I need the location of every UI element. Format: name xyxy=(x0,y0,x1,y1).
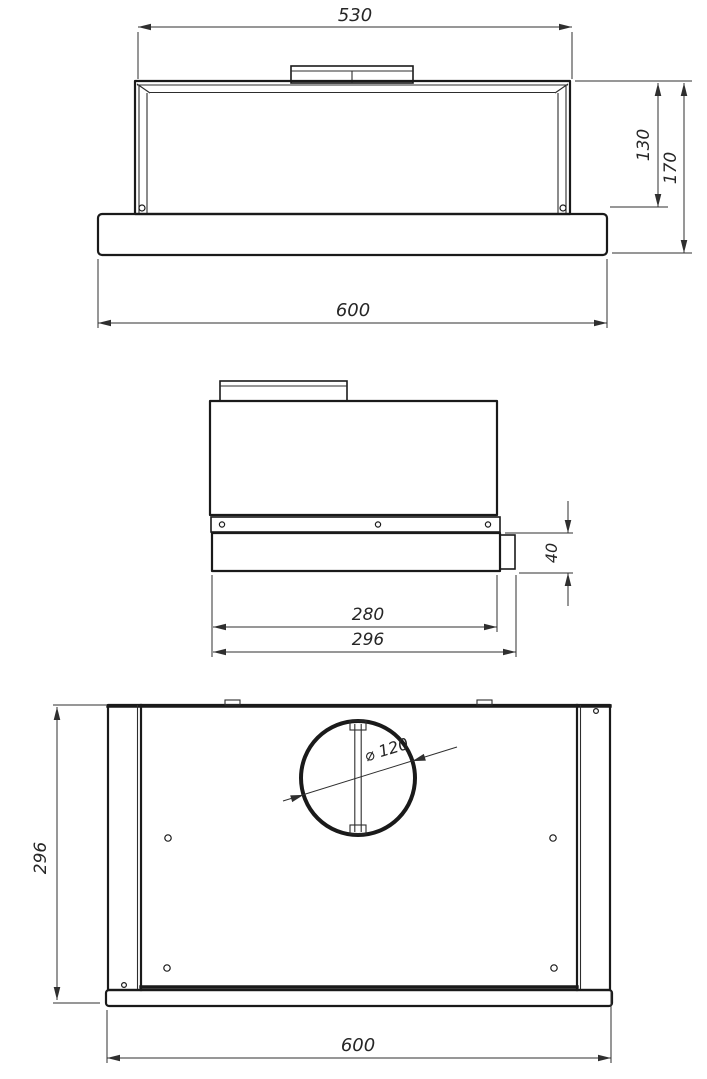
front-view: 530 130 170 600 xyxy=(98,5,692,328)
side-hood-body xyxy=(210,401,497,515)
dim-side-panel-height-label: 40 xyxy=(542,543,561,563)
technical-drawing-page: 530 130 170 600 xyxy=(0,0,707,1079)
dim-front-bottom-width: 600 xyxy=(98,259,607,328)
dim-front-body-height: 130 xyxy=(575,81,692,207)
dim-plan-width: 600 xyxy=(107,992,611,1063)
side-drawer-panel xyxy=(212,533,515,571)
dim-front-total-height-label: 170 xyxy=(661,152,681,184)
dim-front-bottom-width-label: 600 xyxy=(336,300,370,321)
dim-plan-depth-label: 296 xyxy=(31,842,51,875)
dim-side-body-depth-label: 280 xyxy=(352,605,384,625)
dim-side-total-depth-label: 296 xyxy=(352,630,385,650)
side-filter-strip xyxy=(211,517,500,532)
front-hood-body xyxy=(135,81,570,214)
front-bottom-panel xyxy=(98,214,607,255)
plan-screw-holes xyxy=(122,709,599,988)
plan-view: ⌀ 120 296 600 xyxy=(31,700,612,1063)
plan-front-lip xyxy=(106,990,612,1006)
side-screw-holes xyxy=(219,522,490,527)
dim-plan-width-label: 600 xyxy=(341,1035,375,1056)
dim-front-body-height-label: 130 xyxy=(634,129,654,161)
dim-duct-diameter: ⌀ 120 xyxy=(283,734,457,802)
plan-housing xyxy=(108,700,610,990)
dim-front-top-width-label: 530 xyxy=(338,5,372,26)
range-hood-drawing: 530 130 170 600 xyxy=(0,0,707,1079)
side-view: 40 280 296 xyxy=(210,381,573,657)
dim-front-total-height: 170 xyxy=(612,83,692,253)
side-duct-flange xyxy=(220,381,347,401)
front-screw-holes xyxy=(139,205,566,211)
dim-front-top-width: 530 xyxy=(138,5,572,79)
dim-plan-depth: 296 xyxy=(31,705,106,1003)
dim-duct-diameter-label: ⌀ 120 xyxy=(362,734,411,765)
